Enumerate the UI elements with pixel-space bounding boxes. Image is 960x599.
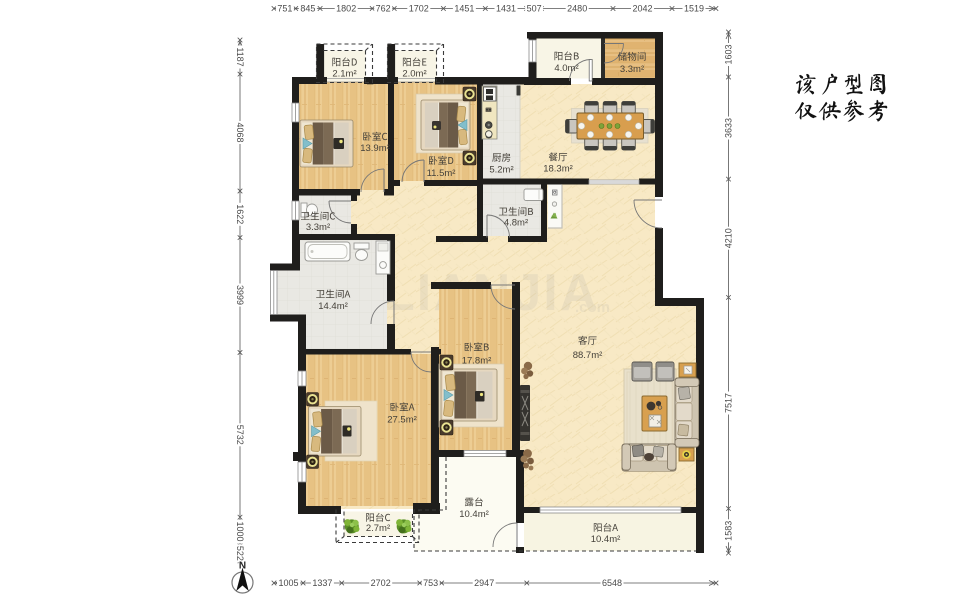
svg-text:1603: 1603 [724, 44, 734, 64]
svg-text:10.4m²: 10.4m² [459, 509, 489, 520]
svg-text:18.3m²: 18.3m² [543, 164, 573, 175]
svg-text:2042: 2042 [632, 4, 652, 14]
svg-text:4068: 4068 [235, 122, 245, 142]
svg-text:7517: 7517 [724, 393, 734, 413]
svg-text:3633: 3633 [724, 118, 734, 138]
svg-text:507: 507 [527, 4, 542, 14]
svg-text:1583: 1583 [724, 521, 734, 541]
svg-text:3.3m²: 3.3m² [306, 222, 330, 233]
svg-text:2480: 2480 [567, 4, 587, 14]
svg-text:14.4m²: 14.4m² [318, 301, 348, 312]
svg-text:1000: 1000 [235, 521, 245, 541]
svg-text:4.0m²: 4.0m² [554, 63, 578, 74]
svg-text:751: 751 [277, 4, 292, 14]
svg-text:4.8m²: 4.8m² [504, 218, 528, 229]
svg-text:1337: 1337 [312, 578, 332, 588]
svg-text:2.7m²: 2.7m² [366, 523, 390, 534]
svg-text:10.4m²: 10.4m² [591, 534, 621, 545]
svg-text:N: N [239, 561, 246, 572]
svg-text:753: 753 [423, 578, 438, 588]
svg-text:27.5m²: 27.5m² [387, 415, 417, 426]
svg-text:1431: 1431 [496, 4, 516, 14]
svg-text:4210: 4210 [724, 228, 734, 248]
svg-text:3.3m²: 3.3m² [620, 64, 644, 75]
svg-text:1519: 1519 [684, 4, 704, 14]
svg-text:1005: 1005 [278, 578, 298, 588]
svg-text:88.7m²: 88.7m² [573, 350, 603, 361]
svg-text:2702: 2702 [371, 578, 391, 588]
svg-text:5732: 5732 [235, 425, 245, 445]
svg-text:1702: 1702 [409, 4, 429, 14]
svg-text:2.0m²: 2.0m² [402, 69, 426, 80]
svg-text:3999: 3999 [235, 285, 245, 305]
svg-text:762: 762 [376, 4, 391, 14]
svg-text:2947: 2947 [474, 578, 494, 588]
svg-text:522: 522 [235, 546, 245, 561]
svg-text:13.9m²: 13.9m² [360, 143, 390, 154]
svg-text:2.1m²: 2.1m² [332, 69, 356, 80]
svg-text:845: 845 [300, 4, 315, 14]
svg-text:6548: 6548 [602, 578, 622, 588]
svg-text:1802: 1802 [336, 4, 356, 14]
svg-text:17.8m²: 17.8m² [462, 356, 492, 367]
svg-text:1622: 1622 [235, 204, 245, 224]
svg-text:11.5m²: 11.5m² [427, 168, 456, 179]
svg-text:1451: 1451 [454, 4, 474, 14]
svg-text:1187: 1187 [235, 47, 245, 66]
svg-text:.com: .com [575, 299, 610, 316]
svg-text:5.2m²: 5.2m² [489, 165, 513, 176]
